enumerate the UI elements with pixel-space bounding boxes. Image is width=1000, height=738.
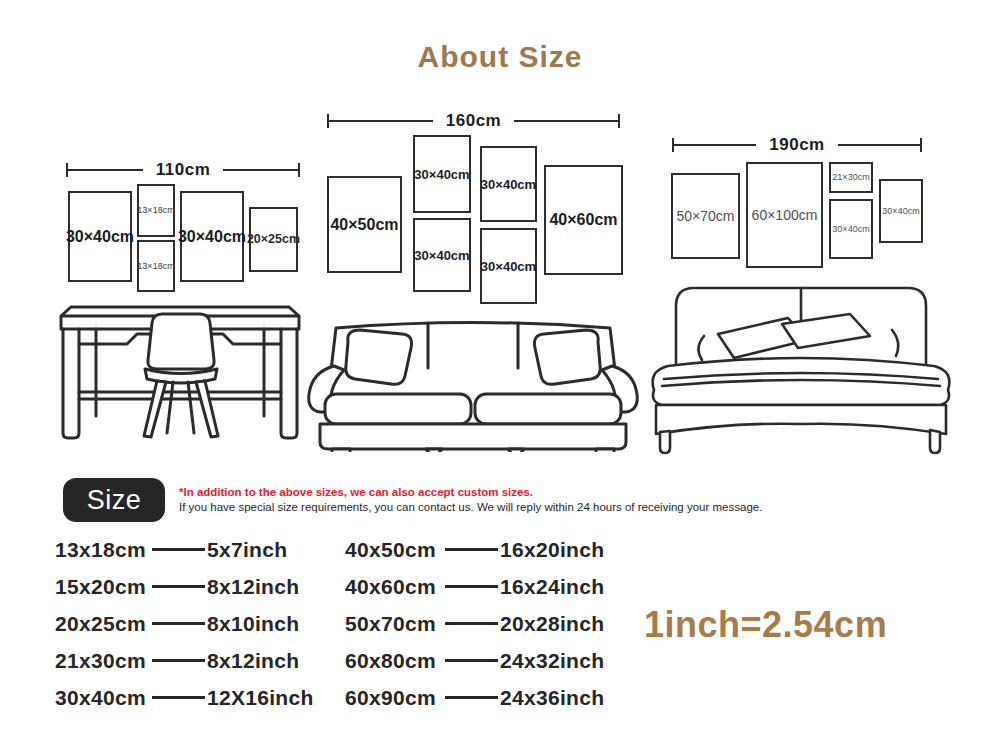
cm-size: 40x60cm <box>345 575 445 599</box>
size-row: 30x40cm12X16inch <box>55 679 314 716</box>
size-row: 40x60cm16x24inch <box>345 568 604 605</box>
size-conversion-column-1: 13x18cm5x7inch 15x20cm8x12inch 20x25cm8x… <box>55 531 314 716</box>
measure-line <box>514 120 618 122</box>
measure-label: 190cm <box>769 135 824 155</box>
frame-30x40: 30×40cm <box>413 218 471 292</box>
inch-size: 16x20inch <box>500 538 604 562</box>
dash-line <box>152 696 205 698</box>
measure-line-160cm: 160cm <box>327 113 620 129</box>
inch-size: 5x7inch <box>207 538 287 562</box>
frame-30x40: 30×40cm <box>480 228 537 304</box>
dash-line <box>152 622 205 624</box>
dash-line <box>152 585 205 587</box>
frame-30x40: 30×40cm <box>879 179 923 243</box>
cm-size: 20x25cm <box>55 612 152 636</box>
frame-label: 30×40cm <box>414 249 469 262</box>
dash-line <box>445 659 498 661</box>
desk-with-chair-illustration <box>55 300 305 445</box>
frame-30x40: 30×40cm <box>480 146 537 222</box>
size-row: 60x80cm24x32inch <box>345 642 604 679</box>
dash-line <box>152 659 205 661</box>
inch-size: 16x24inch <box>500 575 604 599</box>
frame-60x100: 60×100cm <box>746 162 823 268</box>
custom-sizes-note: *In addition to the above sizes, we can … <box>179 486 533 498</box>
measure-tick <box>298 163 300 177</box>
frame-label: 30×40cm <box>66 229 134 245</box>
dash-line <box>445 585 498 587</box>
inch-size: 8x12inch <box>207 575 299 599</box>
dash-line <box>152 548 205 550</box>
size-badge-label: Size <box>87 485 142 516</box>
cm-size: 13x18cm <box>55 538 152 562</box>
cm-size: 40x50cm <box>345 538 445 562</box>
double-bed-illustration <box>642 278 960 462</box>
frame-30x40: 30×40cm <box>413 135 471 213</box>
measure-label: 110cm <box>156 160 211 180</box>
frame-30x40: 30×40cm <box>68 191 132 282</box>
contact-note: If you have special size requirements, y… <box>179 501 762 513</box>
frame-20x25: 20×25cm <box>249 207 298 272</box>
inch-size: 12X16inch <box>207 686 314 710</box>
cm-size: 15x20cm <box>55 575 152 599</box>
size-row: 13x18cm5x7inch <box>55 531 314 568</box>
inch-size: 24x32inch <box>500 649 604 673</box>
frame-label: 21×30cm <box>832 173 869 182</box>
size-row: 21x30cm8x12inch <box>55 642 314 679</box>
frame-13x18: 13×18cm <box>137 240 175 292</box>
inch-size: 8x10inch <box>207 612 299 636</box>
dash-line <box>445 696 498 698</box>
measure-line <box>68 169 143 171</box>
measure-tick <box>618 114 620 128</box>
inch-size: 24x36inch <box>500 686 604 710</box>
dash-line <box>445 548 498 550</box>
measure-line-190cm: 190cm <box>672 137 922 153</box>
cm-size: 60x90cm <box>345 686 445 710</box>
cm-size: 21x30cm <box>55 649 152 673</box>
frame-label: 30×40cm <box>178 229 246 245</box>
measure-label: 160cm <box>446 111 501 131</box>
measure-line <box>674 144 756 146</box>
inch-size: 20x28inch <box>500 612 604 636</box>
cm-size: 30x40cm <box>55 686 152 710</box>
size-row: 50x70cm20x28inch <box>345 605 604 642</box>
frame-label: 30×40cm <box>481 178 536 191</box>
frame-40x60: 40×60cm <box>544 165 623 275</box>
frame-label: 20×25cm <box>247 233 300 246</box>
frame-label: 60×100cm <box>752 208 818 222</box>
frame-label: 30×40cm <box>882 207 919 216</box>
frame-label: 50×70cm <box>677 209 735 223</box>
page-title: About Size <box>0 40 1000 74</box>
frame-40x50: 40×50cm <box>327 176 402 273</box>
frame-13x18: 13×18cm <box>137 184 175 237</box>
measure-line <box>223 169 298 171</box>
measure-line-110cm: 110cm <box>66 162 300 178</box>
size-row: 60x90cm24x36inch <box>345 679 604 716</box>
frame-label: 30×40cm <box>832 225 869 234</box>
cm-size: 60x80cm <box>345 649 445 673</box>
size-row: 15x20cm8x12inch <box>55 568 314 605</box>
measure-line <box>838 144 920 146</box>
inch-cm-conversion: 1inch=2.54cm <box>644 604 887 646</box>
size-row: 20x25cm8x10inch <box>55 605 314 642</box>
frame-label: 30×40cm <box>414 168 469 181</box>
frame-21x30: 21×30cm <box>829 162 873 193</box>
frame-label: 13×18cm <box>137 206 174 215</box>
frame-30x40: 30×40cm <box>829 199 873 259</box>
cm-size: 50x70cm <box>345 612 445 636</box>
size-row: 40x50cm16x20inch <box>345 531 604 568</box>
measure-tick <box>920 138 922 152</box>
size-guide-infographic: About Size 110cm 30×40cm 13×18cm 13×18cm… <box>0 0 1000 738</box>
measure-line <box>329 120 433 122</box>
inch-size: 8x12inch <box>207 649 299 673</box>
size-conversion-column-2: 40x50cm16x20inch 40x60cm16x24inch 50x70c… <box>345 531 604 716</box>
frame-50x70: 50×70cm <box>671 173 740 259</box>
frame-30x40: 30×40cm <box>180 191 244 282</box>
frame-label: 40×60cm <box>549 212 617 228</box>
size-badge: Size <box>63 478 165 522</box>
sofa-illustration <box>298 310 648 452</box>
frame-label: 40×50cm <box>330 217 398 233</box>
frame-label: 30×40cm <box>481 260 536 273</box>
frame-label: 13×18cm <box>137 262 174 271</box>
dash-line <box>445 622 498 624</box>
